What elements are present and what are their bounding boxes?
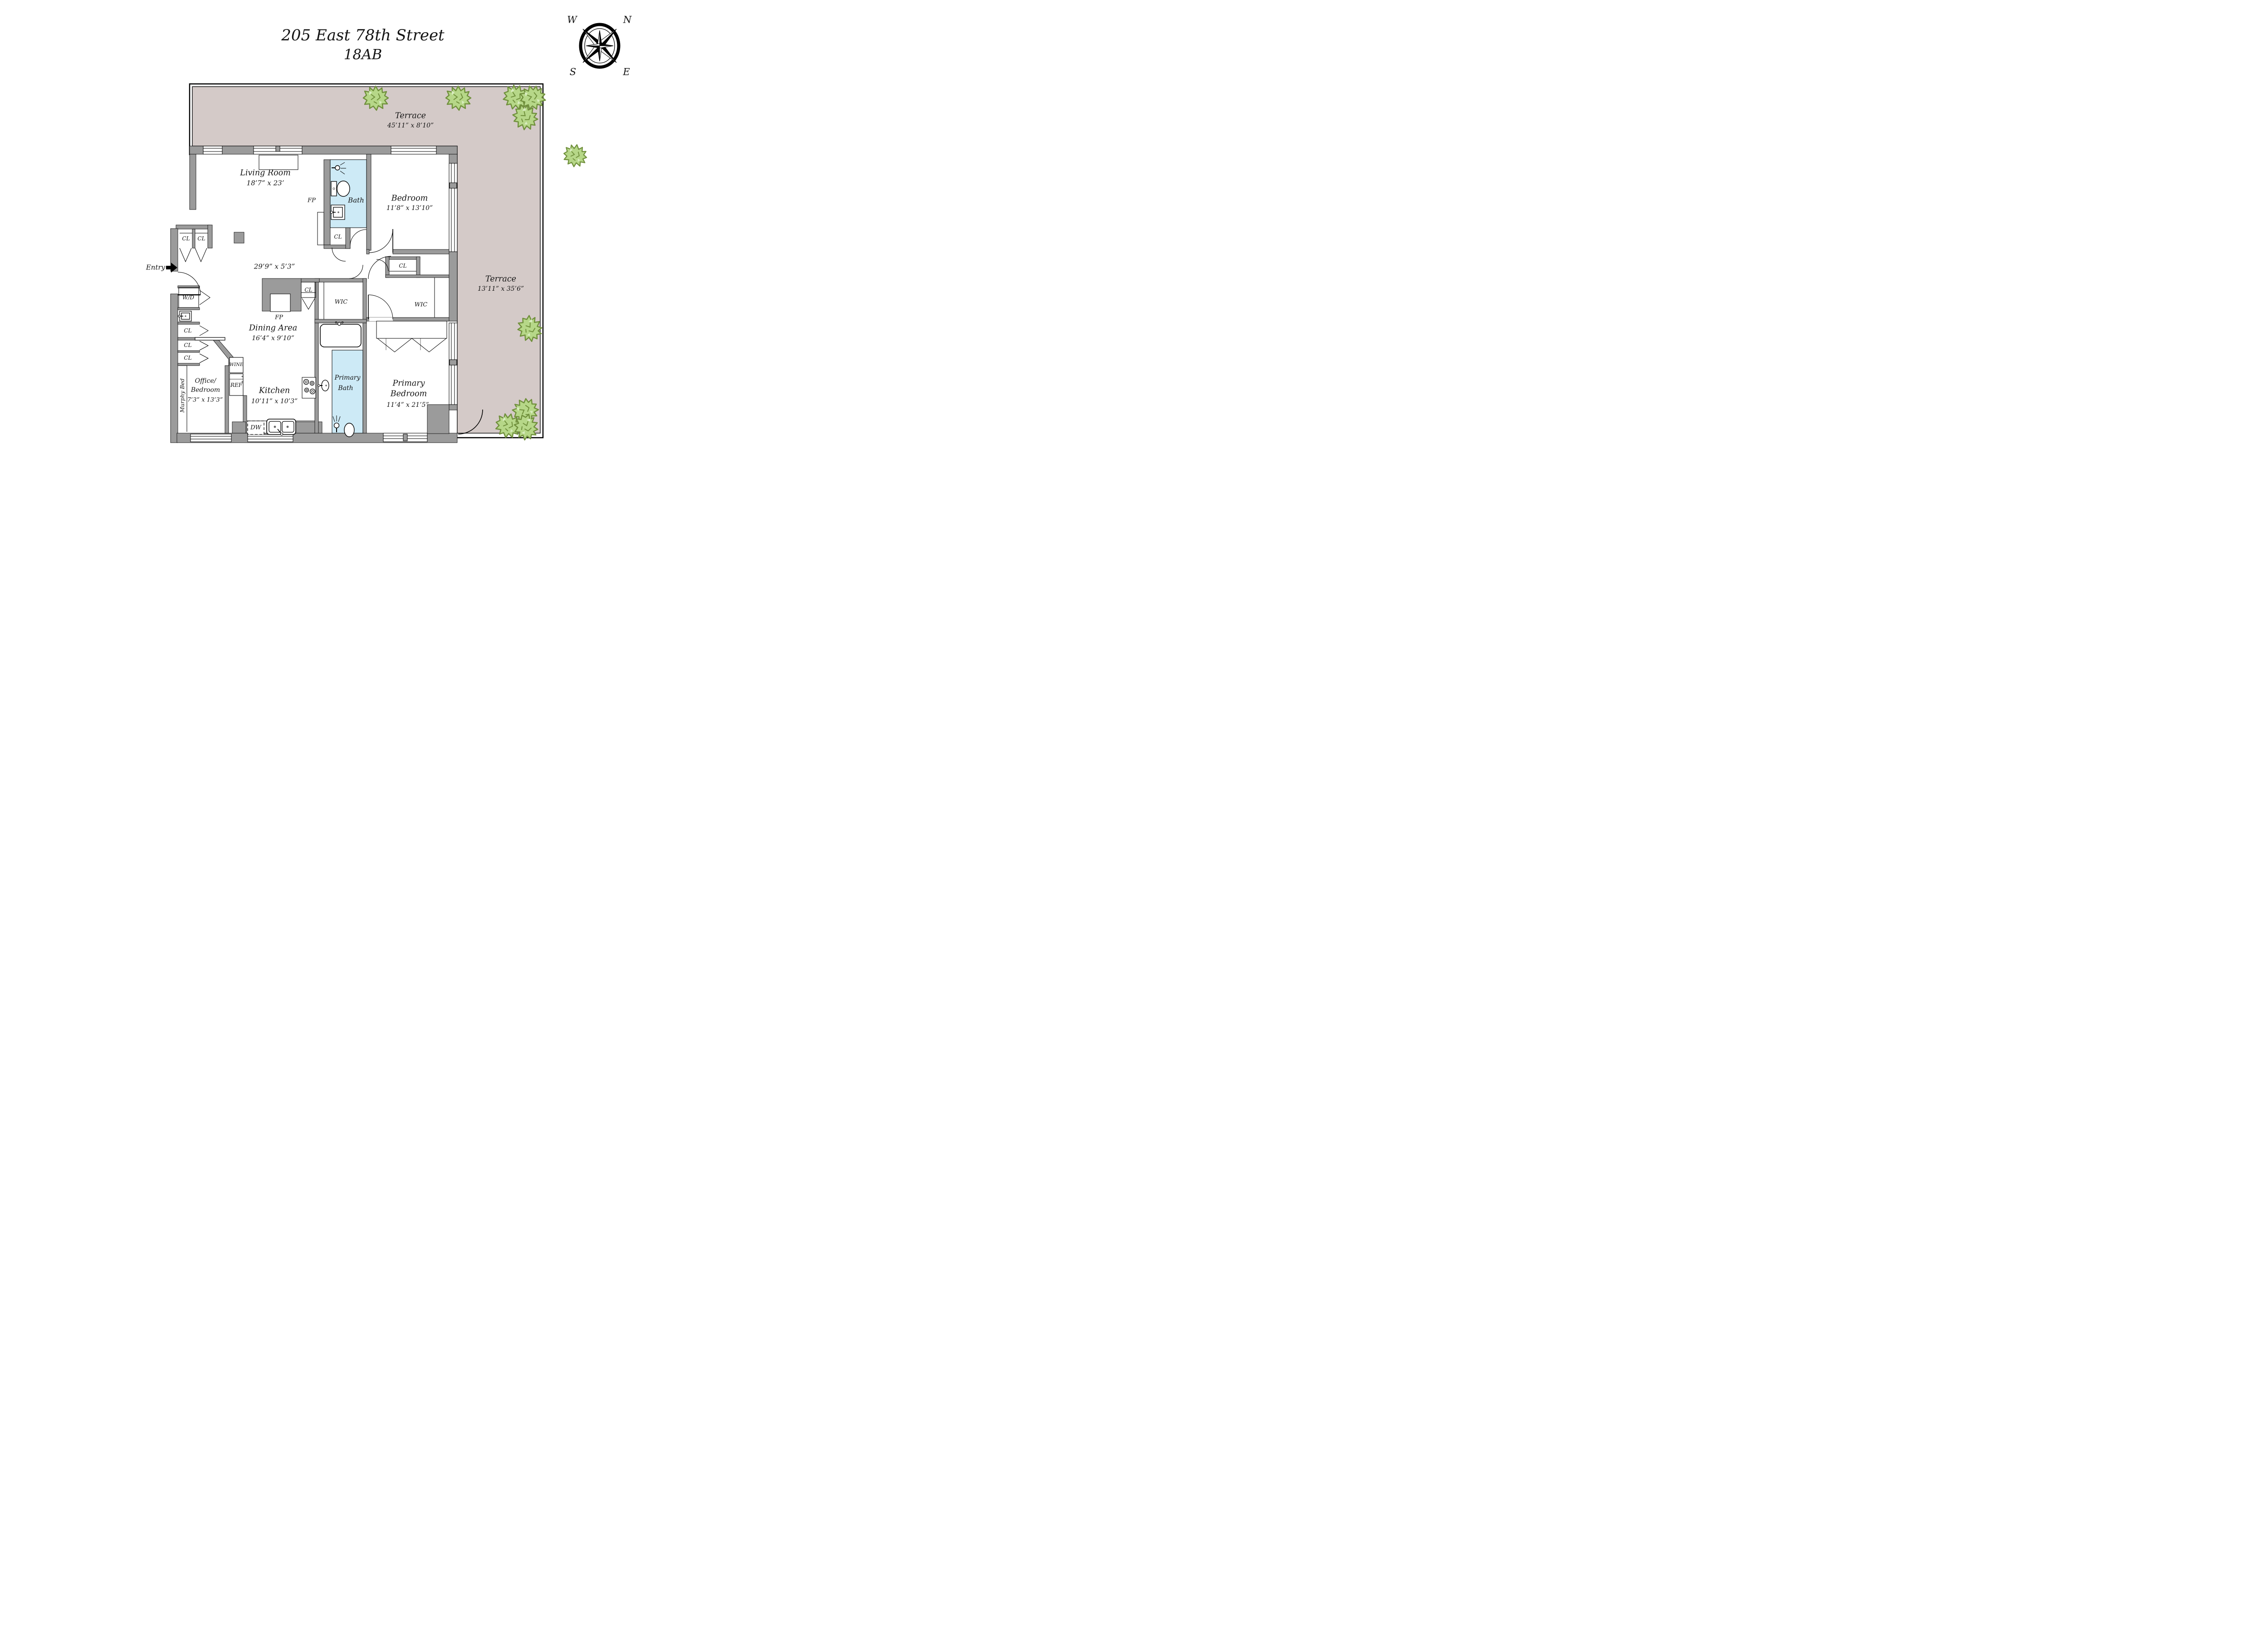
living-room-dims: 18’7” x 23’ (247, 180, 284, 187)
tree-icon (562, 143, 588, 169)
primary-bedroom-terrace-window (449, 323, 457, 405)
door-opening (369, 317, 393, 321)
dishwasher-label: DW (250, 425, 261, 431)
primary-bath-name-1: Primary (335, 375, 361, 381)
primary-bedroom-name-2: Bedroom (391, 390, 427, 398)
office-window (191, 434, 231, 442)
wine-label: WINE (230, 363, 243, 367)
primary-bedroom-door (368, 295, 393, 319)
compass-icon (581, 24, 619, 67)
closet-label-4: CL (184, 342, 191, 348)
terrace-top-dims: 45’11” x 8’10” (387, 122, 434, 129)
living-room-name: Living Room (240, 169, 291, 177)
closet-label-dining: CL (304, 287, 312, 293)
wic-label-left: WIC (335, 299, 347, 305)
kitchen-dims: 10’11” x 10’3” (251, 398, 298, 405)
bath-door (350, 229, 367, 246)
washer-dryer-label: W/D (182, 295, 194, 300)
dining-name: Dining Area (249, 324, 297, 332)
ref-label: REF (230, 382, 242, 388)
primary-bedroom-dims: 11’4” x 21’5” (386, 402, 429, 408)
page-title-line2: 18AB (344, 48, 382, 62)
office-name-2: Bedroom (191, 387, 220, 393)
page-title-line1: 205 East 78th Street (281, 28, 444, 43)
compass-n: N (623, 15, 631, 25)
bedroom-name: Bedroom (391, 195, 428, 203)
kitchen-name: Kitchen (259, 387, 290, 395)
primary-bedroom-name-1: Primary (392, 380, 425, 388)
toilet-icon (331, 181, 350, 196)
closet-label-2: CL (197, 236, 205, 241)
bedroom-top-window (391, 146, 436, 154)
living-room-window-1 (203, 146, 222, 154)
office-dims: 7’3” x 13’3” (187, 397, 223, 403)
bathtub-icon (320, 322, 361, 347)
fireplace-label-living: FP (308, 198, 316, 204)
primary-bath-name-2: Bath (338, 385, 353, 391)
compass-e: E (623, 68, 630, 77)
bath-sink-icon (331, 205, 345, 220)
fireplace-living-icon (318, 212, 324, 245)
compass-s: S (570, 68, 576, 77)
bedroom-door (369, 229, 393, 253)
bedroom-dims: 11’8” x 13’10” (386, 205, 433, 211)
wic-label-right: WIC (415, 302, 427, 308)
closet-label-5: CL (184, 355, 191, 361)
dining-dims: 16’4” x 9’10” (252, 335, 294, 342)
bedroom-terrace-window (449, 163, 457, 252)
kitchen-window (248, 435, 293, 442)
entry-door (178, 272, 200, 295)
terrace-right-name: Terrace (485, 275, 516, 283)
gallery-dims: 29’9” x 5’3” (254, 264, 295, 270)
closet-label-bath: CL (334, 234, 342, 239)
primary-bedroom-window (383, 433, 427, 442)
office-name-1: Office/ (195, 378, 216, 384)
wic-door (349, 265, 363, 278)
bath-closet-door (332, 248, 346, 261)
fireplace-dining-icon (270, 294, 290, 312)
primary-sink-icon (318, 380, 329, 391)
murphy-bed-label: Murphy Bed (180, 378, 185, 412)
stove-icon (302, 377, 316, 398)
closet-label-mid: CL (399, 263, 406, 269)
closet-label-1: CL (182, 236, 190, 241)
floorplan-page: 205 East 78th Street 18AB W N S E Terrac… (0, 0, 701, 468)
utility-sink-icon (178, 311, 191, 321)
closet-label-3: CL (184, 328, 191, 333)
compass-w: W (567, 15, 577, 25)
living-room-window-2 (254, 146, 302, 154)
primary-toilet-icon (344, 423, 354, 437)
bath-name: Bath (348, 197, 364, 204)
terrace-right-dims: 13’11” x 35’6” (478, 286, 524, 292)
entry-label: Entry (146, 264, 165, 271)
fireplace-label-dining: FP (275, 315, 283, 321)
terrace-top-name: Terrace (395, 112, 426, 120)
floorplan-drawing (0, 0, 701, 468)
